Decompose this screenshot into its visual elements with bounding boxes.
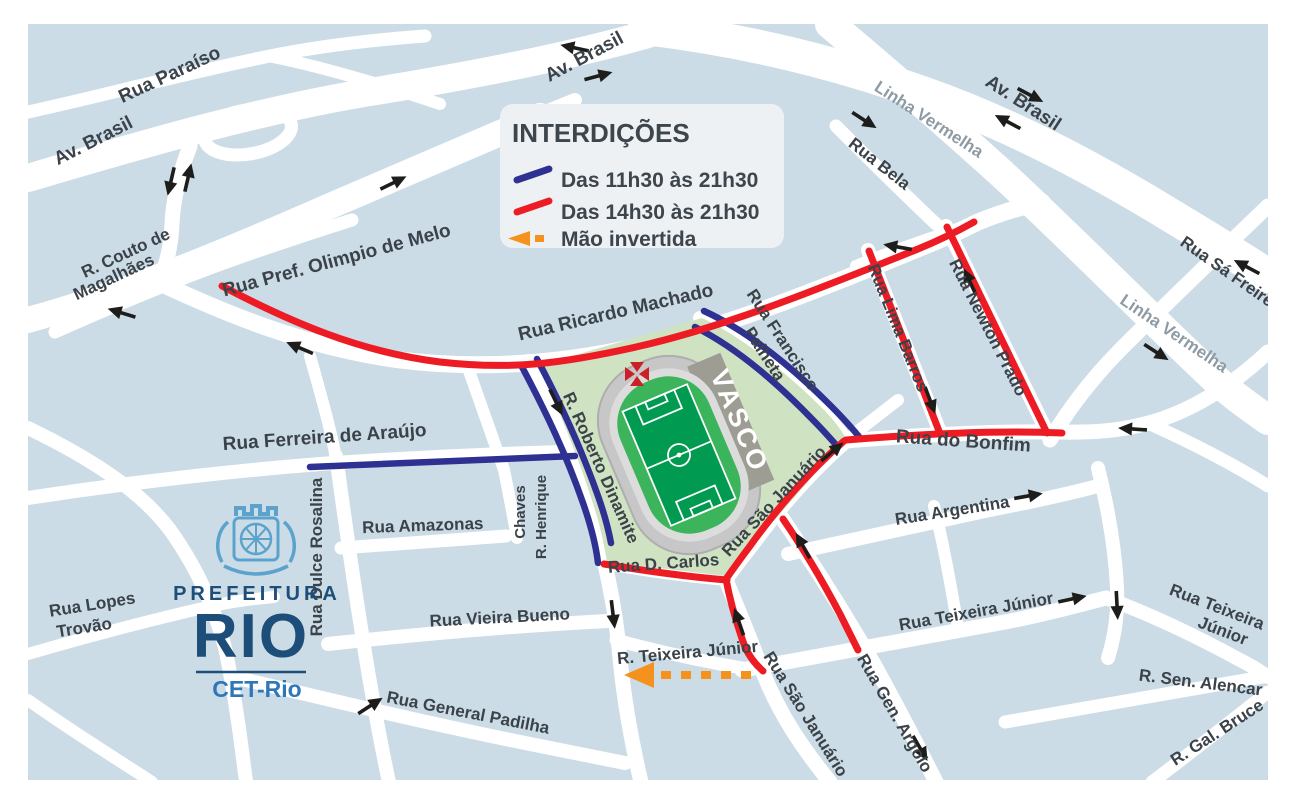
legend-item-label: Mão invertida <box>561 228 697 251</box>
logo-rio-text: RIO <box>193 602 309 671</box>
legend-title: INTERDIÇÕES <box>512 118 690 148</box>
logo-cet-rio-text: CET-Rio <box>212 676 301 702</box>
street-label: Chaves <box>512 485 529 538</box>
map-canvas: VASCO <box>0 0 1297 805</box>
legend-item-label: Das 14h30 às 21h30 <box>561 201 759 224</box>
traffic-closure-map-page: VASCO <box>0 0 1297 805</box>
street-label: R. Henrique <box>533 475 550 559</box>
legend-item-label: Das 11h30 às 21h30 <box>561 169 758 192</box>
street-label: Rua Dulce Rosalina <box>307 477 326 636</box>
legend-panel: INTERDIÇÕES Das 11h30 às 21h30 Das 14h30… <box>500 104 784 251</box>
